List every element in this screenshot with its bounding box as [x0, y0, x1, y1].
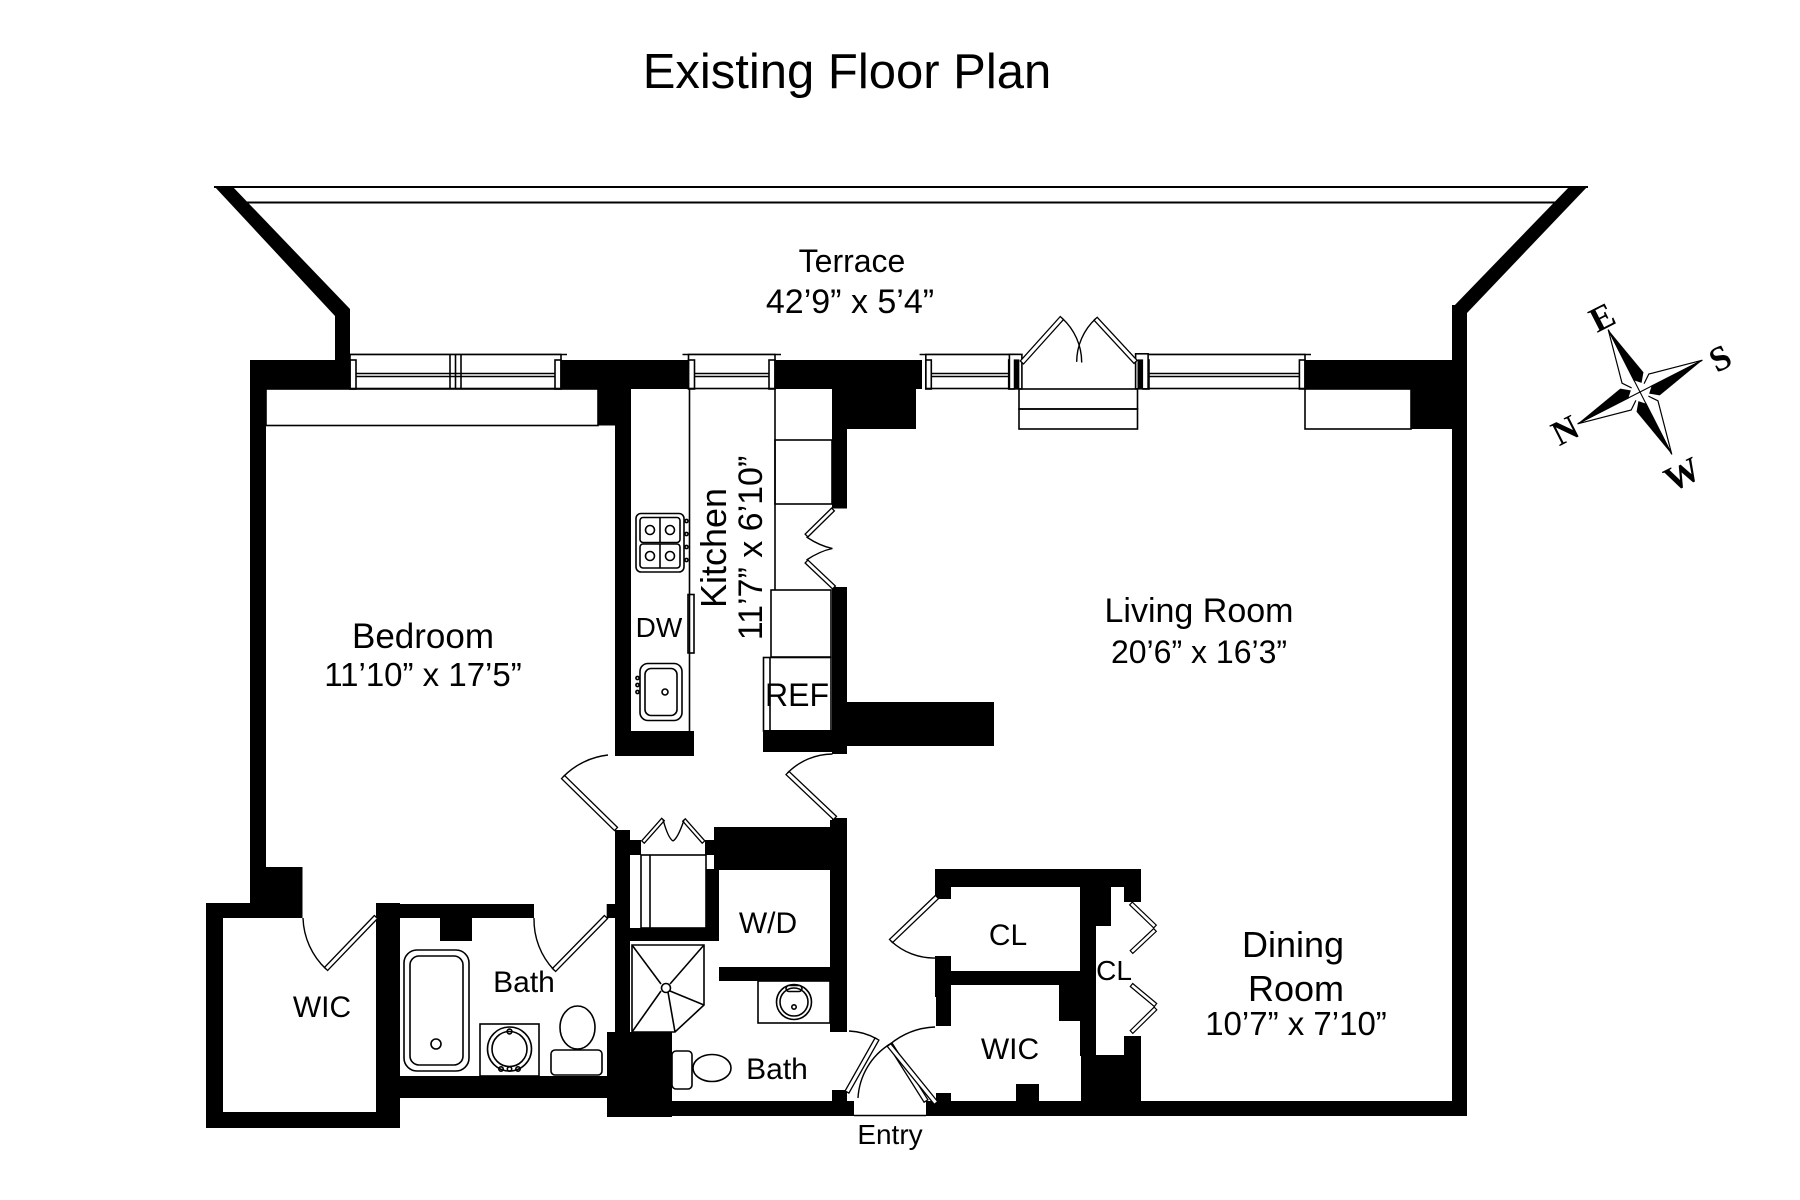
svg-text:Entry: Entry [857, 1119, 922, 1150]
svg-text:CL: CL [989, 919, 1027, 952]
svg-text:11’10” x 17’5”: 11’10” x 17’5” [324, 656, 522, 693]
svg-text:Kitchen: Kitchen [693, 488, 734, 608]
svg-text:CL: CL [1096, 955, 1132, 986]
svg-text:REF: REF [765, 677, 829, 713]
svg-text:20’6” x 16’3”: 20’6” x 16’3” [1111, 634, 1287, 670]
svg-text:WIC: WIC [981, 1033, 1039, 1066]
svg-text:Terrace: Terrace [799, 243, 906, 279]
svg-text:DW: DW [636, 612, 683, 643]
svg-text:Bath: Bath [746, 1053, 808, 1086]
svg-text:42’9” x 5’4”: 42’9” x 5’4” [766, 283, 934, 321]
svg-text:10’7” x 7’10”: 10’7” x 7’10” [1205, 1005, 1387, 1042]
svg-text:Bath: Bath [493, 966, 555, 999]
svg-text:Room: Room [1248, 968, 1344, 1009]
svg-text:11’7” x 6’10”: 11’7” x 6’10” [732, 456, 770, 641]
svg-text:Bedroom: Bedroom [352, 617, 494, 656]
svg-text:Dining: Dining [1242, 924, 1344, 965]
svg-text:Living Room: Living Room [1105, 592, 1294, 630]
svg-text:Existing Floor Plan: Existing Floor Plan [643, 45, 1052, 99]
svg-text:W/D: W/D [739, 907, 797, 940]
svg-text:WIC: WIC [293, 991, 351, 1024]
